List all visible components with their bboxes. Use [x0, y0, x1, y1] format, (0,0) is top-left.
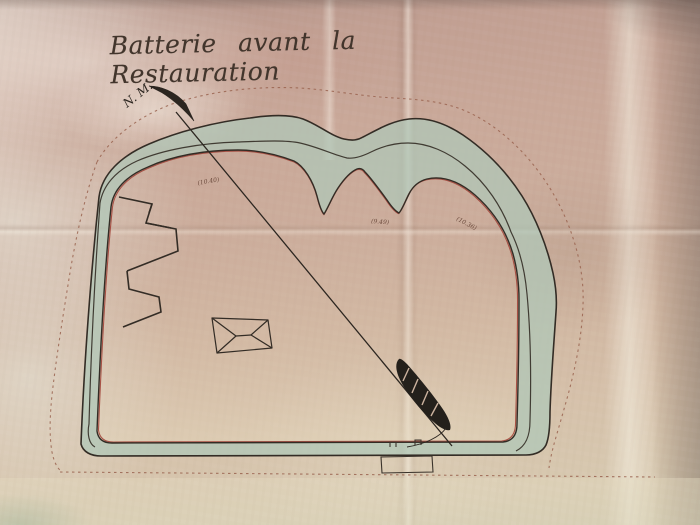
elevation-label-center: (9.49): [371, 218, 390, 226]
north-label: N. M.: [119, 79, 155, 111]
fort-interior-wash: [97, 150, 519, 443]
north-arrow-head: [149, 86, 194, 121]
battery-plan-drawing: N. M. (10.40) (9.49) (10.36): [0, 0, 700, 525]
scanned-plan-sheet: Batterie avant la Restauration: [0, 0, 700, 525]
